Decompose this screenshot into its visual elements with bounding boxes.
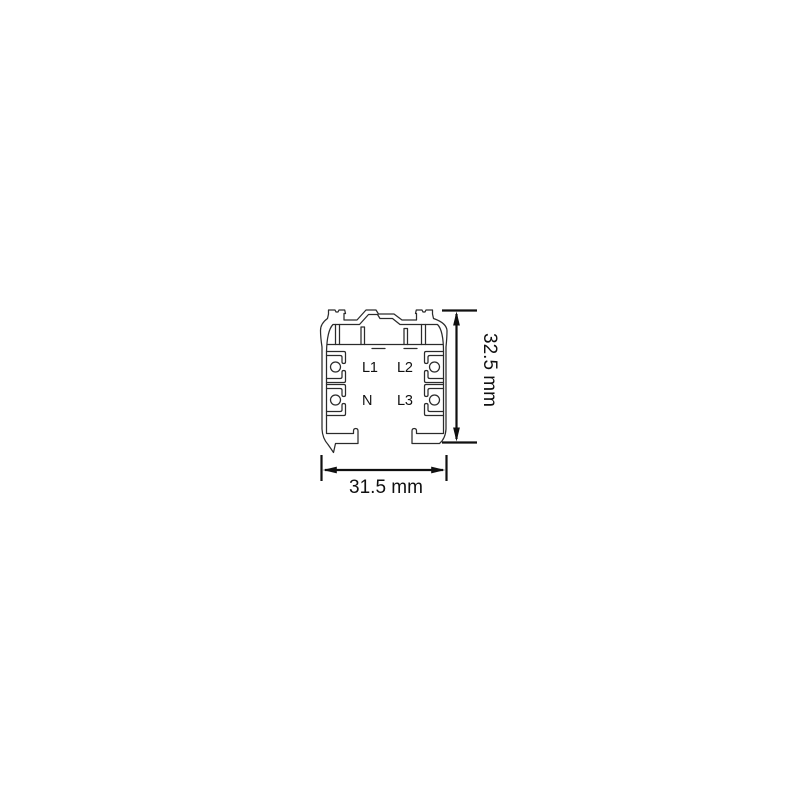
dimension-arrowheads — [323, 312, 460, 474]
conductor-label-n: N — [362, 393, 372, 409]
width-dimension-label: 31.5 mm — [349, 477, 423, 498]
conductor-label-l1: L1 — [362, 360, 378, 376]
height-dimension-arrow-down — [453, 428, 460, 442]
conductor-label-l3: L3 — [397, 393, 413, 409]
conductor-contact-circle-l2 — [430, 362, 440, 372]
conductor-pocket-bracket-left — [327, 352, 346, 416]
conductor-label-l2: L2 — [397, 360, 413, 376]
conductor-pocket-bracket-right — [425, 352, 444, 416]
tab-webs — [336, 325, 426, 345]
conductor-contact-circle-l3 — [430, 395, 440, 405]
width-dimension-arrow-right — [431, 467, 445, 474]
hump-chamber-walls — [361, 327, 408, 345]
height-dimension-arrow-up — [453, 312, 460, 326]
conductor-labels: L1 L2 N L3 — [362, 360, 413, 409]
height-dimension-label: 32.5 mm — [479, 333, 500, 407]
track-cross-section-diagram: 32.5 mm 31.5 mm L1 L2 N L3 — [0, 0, 800, 800]
conductor-contact-circle-l1 — [331, 362, 341, 372]
diagram-canvas: 32.5 mm 31.5 mm L1 L2 N L3 — [0, 0, 800, 800]
profile-drawing — [321, 310, 448, 453]
conductor-contact-circle-n — [331, 395, 341, 405]
width-dimension-arrow-left — [323, 467, 337, 474]
